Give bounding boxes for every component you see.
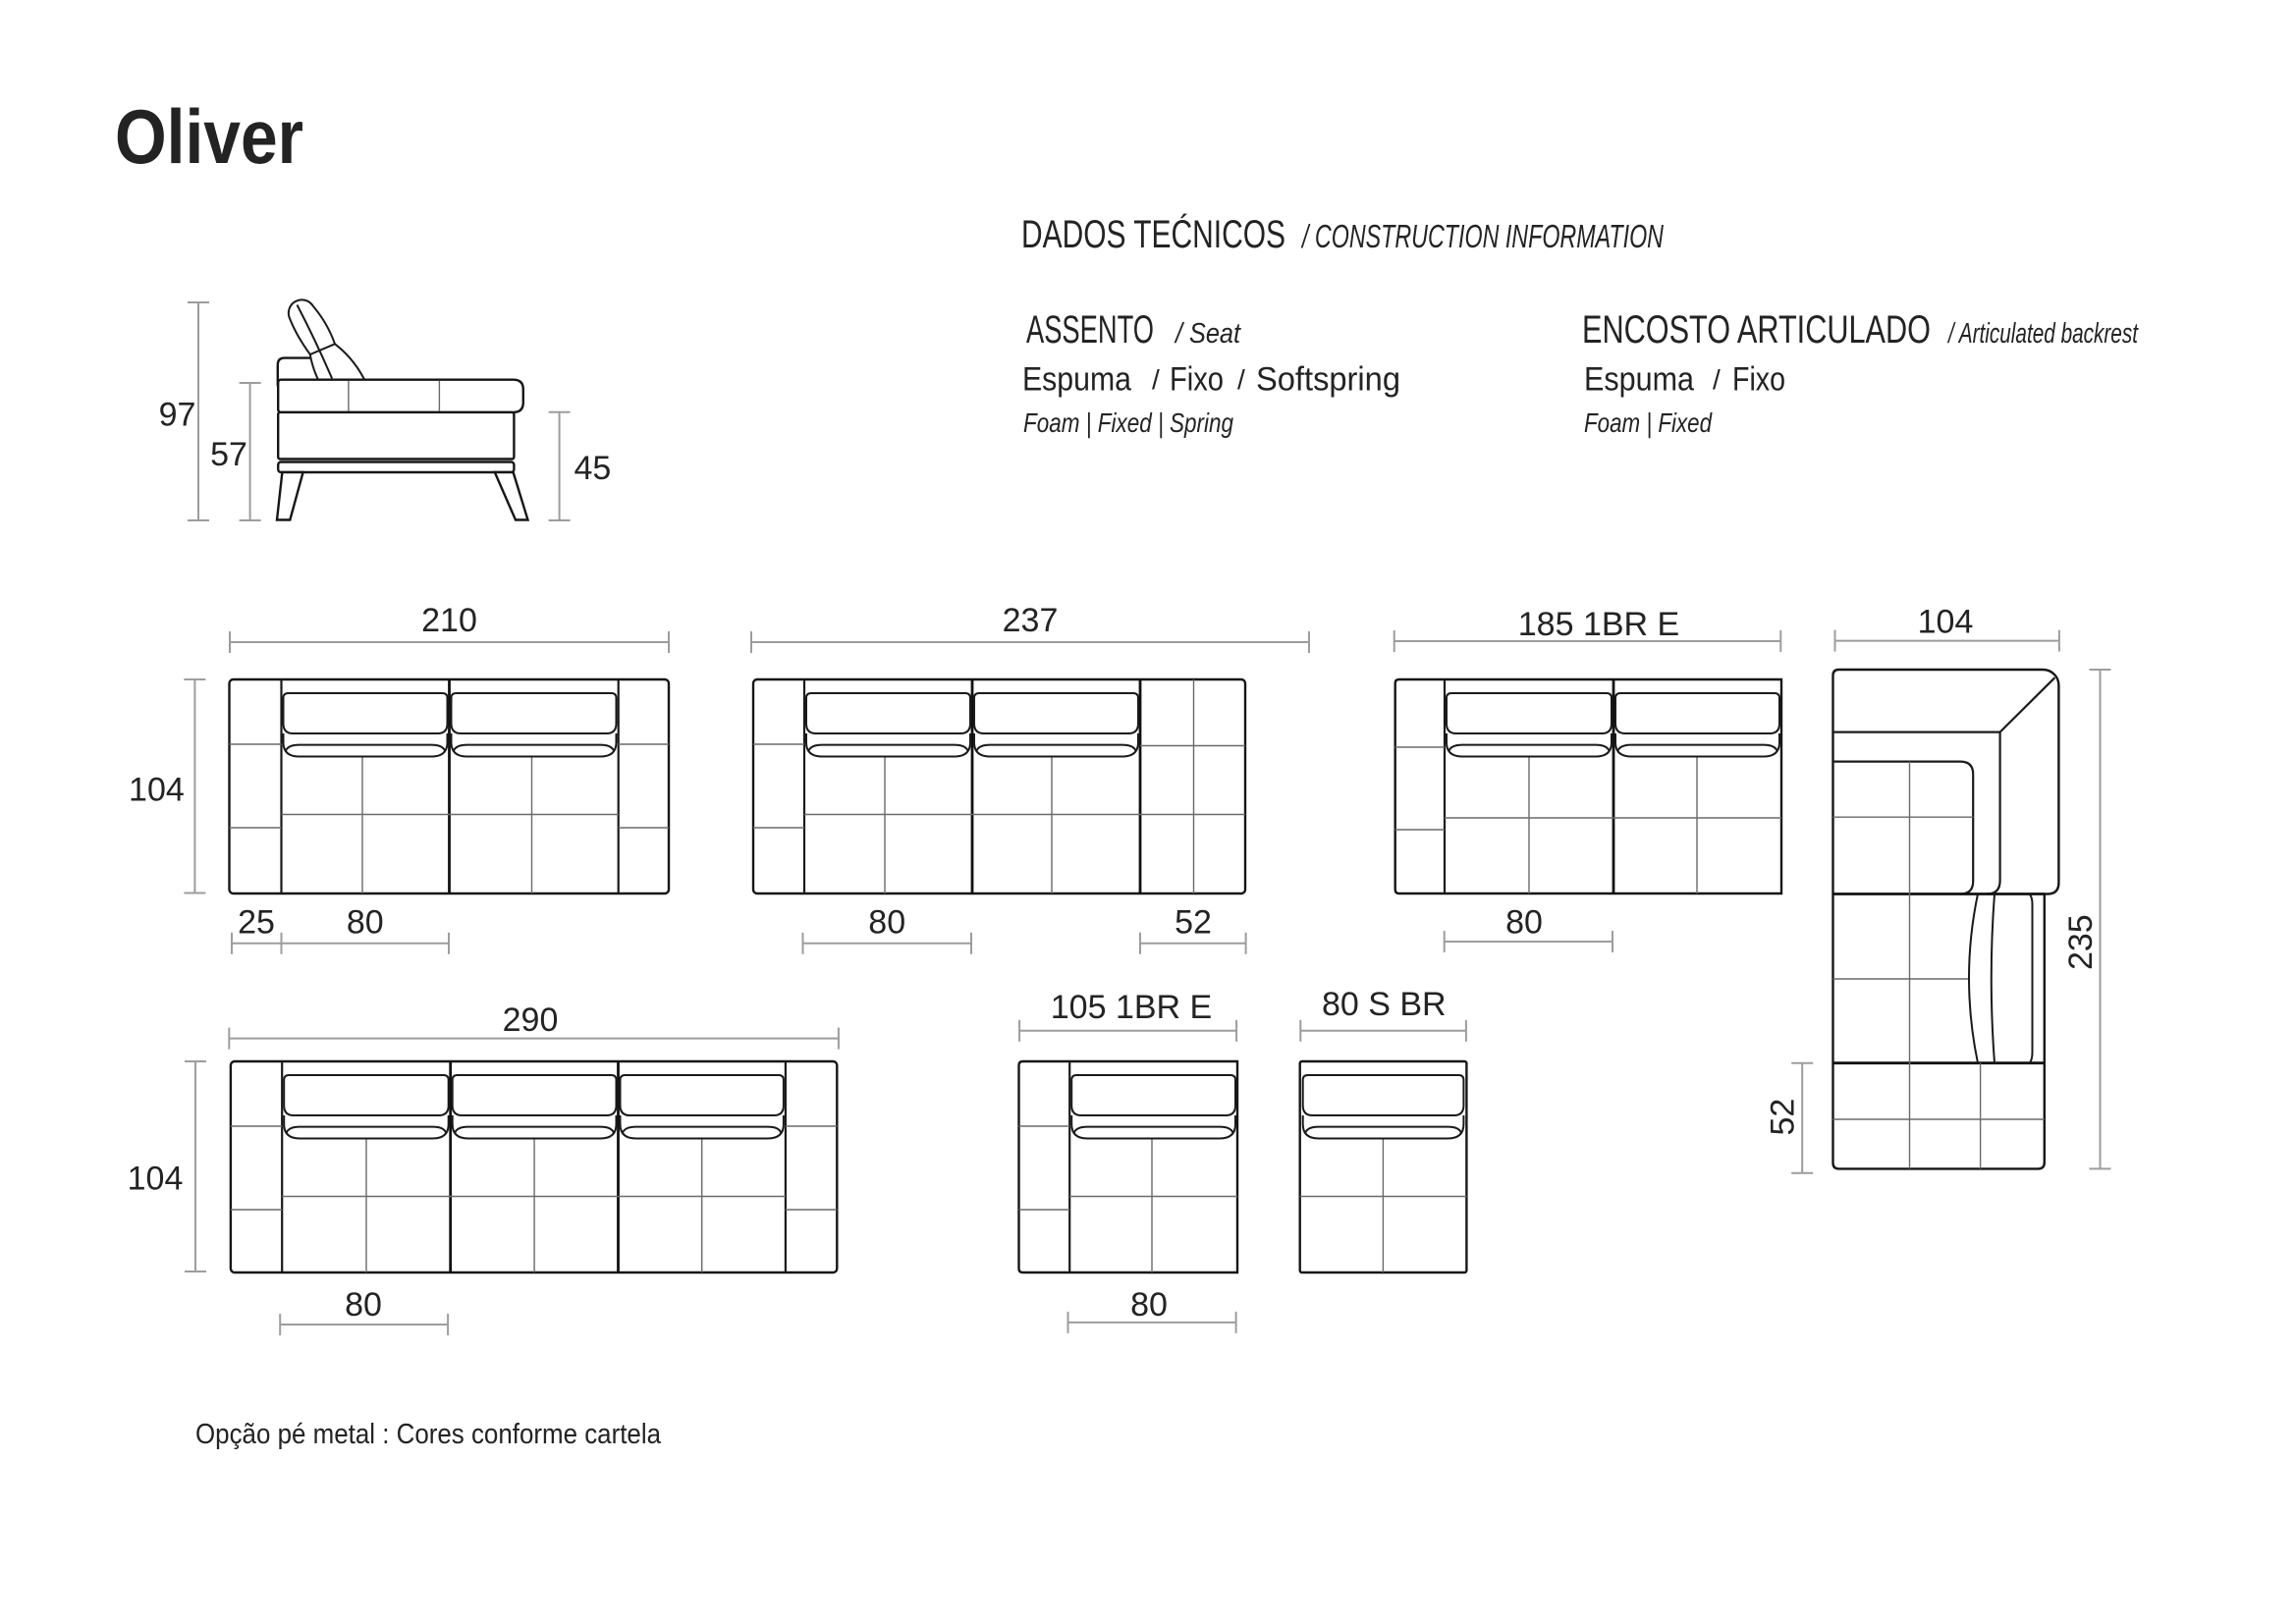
svg-text:/: / bbox=[1152, 364, 1160, 395]
svg-text:25: 25 bbox=[238, 904, 275, 942]
svg-text:80: 80 bbox=[868, 904, 905, 942]
svg-text:97: 97 bbox=[159, 397, 196, 434]
svg-text:/ Articulated backrest: / Articulated backrest bbox=[1947, 318, 2140, 350]
svg-text:105 1BR E: 105 1BR E bbox=[1051, 989, 1212, 1026]
svg-text:80: 80 bbox=[347, 904, 384, 942]
svg-text:45: 45 bbox=[574, 450, 611, 487]
svg-text:210: 210 bbox=[421, 602, 477, 639]
svg-text:Softspring: Softspring bbox=[1256, 361, 1400, 399]
svg-text:Fixo: Fixo bbox=[1170, 361, 1224, 399]
svg-text:Foam | Fixed: Foam | Fixed bbox=[1584, 407, 1713, 438]
svg-text:ENCOSTO ARTICULADO: ENCOSTO ARTICULADO bbox=[1582, 308, 1931, 352]
svg-text:80 S BR: 80 S BR bbox=[1322, 986, 1447, 1023]
svg-text:80: 80 bbox=[1130, 1286, 1168, 1324]
svg-text:80: 80 bbox=[1505, 904, 1543, 942]
svg-text:/ CONSTRUCTION INFORMATION: / CONSTRUCTION INFORMATION bbox=[1301, 218, 1665, 254]
svg-text:Opção pé metal : Cores conform: Opção pé metal : Cores conforme cartela bbox=[195, 1419, 661, 1450]
svg-text:/: / bbox=[1237, 364, 1245, 395]
svg-text:104: 104 bbox=[128, 1161, 184, 1198]
svg-text:/: / bbox=[1713, 364, 1721, 395]
svg-text:Foam | Fixed | Spring: Foam | Fixed | Spring bbox=[1023, 407, 1233, 438]
svg-text:104: 104 bbox=[1918, 604, 1974, 641]
svg-text:Fixo: Fixo bbox=[1732, 361, 1785, 399]
svg-text:DADOS TEĆNICOS: DADOS TEĆNICOS bbox=[1021, 212, 1285, 256]
svg-text:80: 80 bbox=[345, 1286, 382, 1324]
svg-text:52: 52 bbox=[1765, 1099, 1802, 1136]
svg-text:ASSENTO: ASSENTO bbox=[1026, 308, 1154, 352]
svg-text:/ Seat: / Seat bbox=[1174, 318, 1241, 350]
svg-text:104: 104 bbox=[129, 772, 185, 809]
svg-text:Espuma: Espuma bbox=[1022, 361, 1131, 399]
svg-text:57: 57 bbox=[210, 436, 247, 473]
svg-text:Oliver: Oliver bbox=[115, 93, 303, 180]
svg-text:Espuma: Espuma bbox=[1584, 361, 1694, 399]
svg-text:235: 235 bbox=[2062, 914, 2100, 970]
svg-text:52: 52 bbox=[1175, 904, 1212, 942]
svg-text:185 1BR E: 185 1BR E bbox=[1518, 606, 1679, 643]
svg-text:290: 290 bbox=[503, 1001, 559, 1039]
svg-text:237: 237 bbox=[1003, 602, 1059, 639]
